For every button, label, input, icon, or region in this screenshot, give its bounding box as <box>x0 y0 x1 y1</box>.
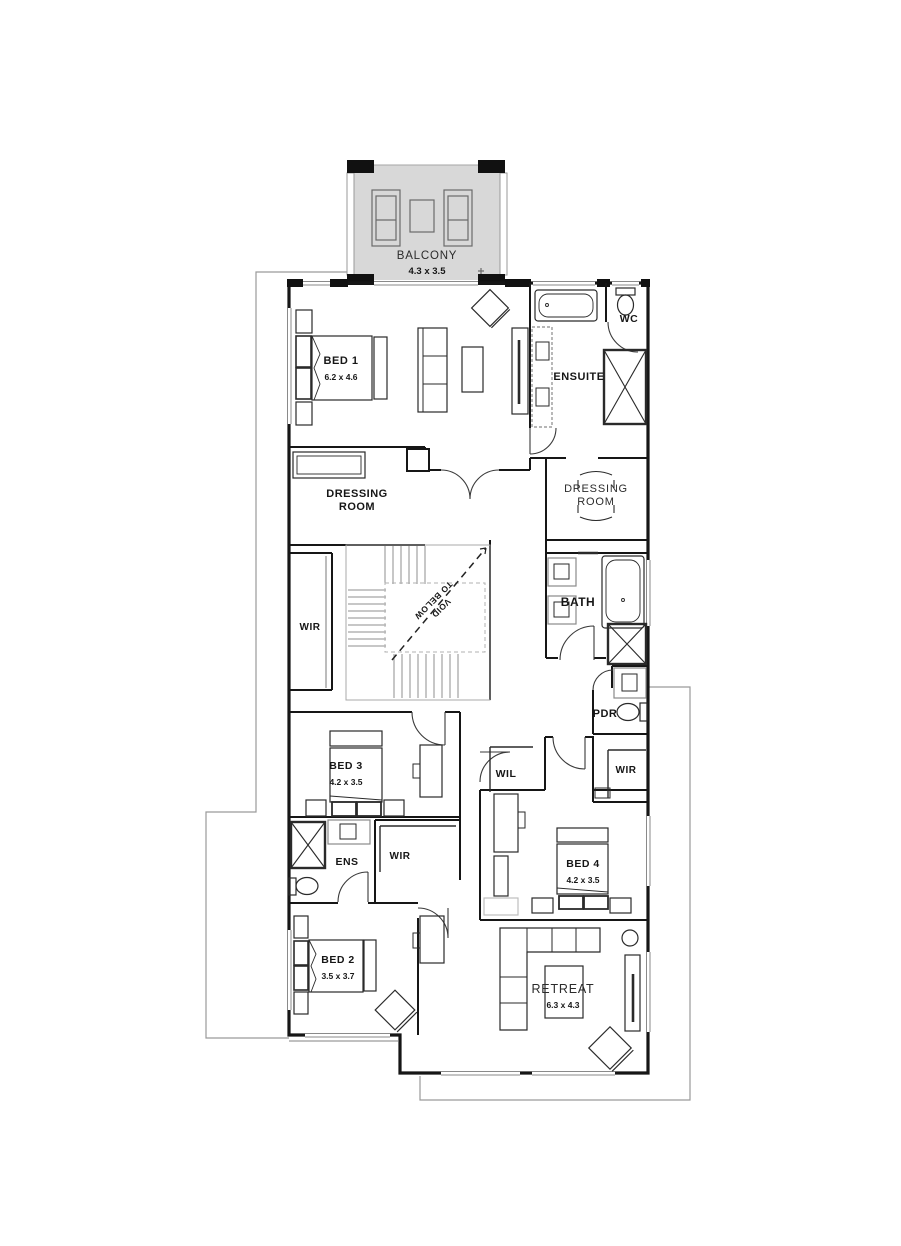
pillow <box>559 896 583 909</box>
occasional-chair <box>375 990 417 1032</box>
room-labels: BED 1 6.2 x 4.6 ENSUITE WC DRESSING ROOM… <box>300 313 639 1010</box>
toilet <box>617 703 647 721</box>
sink-unit <box>548 558 576 586</box>
shower <box>604 350 646 424</box>
stairs: VOID TO BELOW <box>346 545 490 700</box>
sink <box>536 388 549 406</box>
wardrobe <box>420 916 444 963</box>
dressing-left-wardrobe <box>293 452 365 478</box>
wil-label: WIL <box>496 768 517 780</box>
bed2-dims: 3.5 x 3.7 <box>321 971 354 981</box>
shower <box>291 822 325 868</box>
headboard-shelf <box>330 731 382 746</box>
dressing-right-line1: DRESSING <box>564 483 628 495</box>
wardrobe-knob <box>518 812 525 828</box>
bed3-dims: 4.2 x 3.5 <box>329 777 362 787</box>
shower <box>608 624 646 664</box>
bed4-furniture <box>484 794 631 915</box>
wc-label: WC <box>620 313 639 325</box>
double-door-master <box>441 470 499 499</box>
bed-fold <box>330 796 382 800</box>
pillow <box>294 941 308 965</box>
bed-fold <box>309 940 316 992</box>
dressing-left-line2: ROOM <box>339 501 375 513</box>
pillow <box>296 368 311 399</box>
pillow <box>296 336 311 367</box>
bed1-label: BED 1 <box>324 355 359 367</box>
wir-right-label: WIR <box>616 765 637 776</box>
sofa-cushions <box>423 328 447 412</box>
round-table <box>622 930 638 946</box>
bed3-bed <box>330 748 382 802</box>
coffee-table <box>462 347 483 392</box>
pdr-label: PDR <box>593 708 618 720</box>
wir-left-label: WIR <box>300 622 321 633</box>
window-bed2-bottom <box>305 1032 390 1038</box>
nightstand <box>610 898 631 913</box>
window-ensuite-top <box>533 280 595 286</box>
bed2-label: BED 2 <box>321 954 354 966</box>
door-ens <box>338 872 368 902</box>
pillow <box>584 896 608 909</box>
cabinet <box>494 856 508 896</box>
floor-plan-drawing: BALCONY 4.3 x 3.5 <box>0 0 901 1246</box>
door-pdr <box>593 670 613 690</box>
sink <box>554 564 569 579</box>
door-wc <box>608 322 638 352</box>
window-retreat-bottom-2 <box>532 1070 615 1076</box>
bath-label: BATH <box>561 595 595 609</box>
pdr-fixtures <box>614 668 647 721</box>
l-sofa <box>500 928 600 1030</box>
doors <box>338 322 638 938</box>
window-bath <box>645 560 651 626</box>
toilet <box>616 288 635 315</box>
bed-fold <box>312 336 320 400</box>
void-label: VOID TO BELOW <box>412 579 462 629</box>
bed4-dims: 4.2 x 3.5 <box>566 875 599 885</box>
wardrobe-knob <box>413 764 420 778</box>
dressing-left-line1: DRESSING <box>326 488 387 500</box>
ens-label: ENS <box>335 856 358 868</box>
pillow <box>294 966 308 990</box>
pillow <box>357 802 381 816</box>
occasional-chair <box>589 1027 634 1072</box>
bed2-bed <box>309 940 363 992</box>
retreat-label: RETREAT <box>531 982 594 996</box>
nightstand <box>296 310 312 333</box>
nightstand <box>296 402 312 425</box>
bed1-bed <box>312 336 372 400</box>
bed1-dims: 6.2 x 4.6 <box>324 372 357 382</box>
nightstand <box>294 916 308 938</box>
floor-plan: BALCONY 4.3 x 3.5 <box>0 0 901 1246</box>
bed4-label: BED 4 <box>566 858 599 870</box>
headboard-shelf <box>557 828 608 842</box>
door-bed4 <box>553 737 585 769</box>
bed3-furniture <box>306 731 442 816</box>
balcony-rail-left <box>347 173 354 275</box>
door-bath <box>560 626 594 660</box>
sofa <box>418 328 447 412</box>
dressing-right-line2: ROOM <box>577 496 614 508</box>
door-bed3 <box>412 712 445 745</box>
roof-outline <box>206 272 690 1100</box>
sink <box>622 674 637 691</box>
occasional-chair <box>472 290 510 328</box>
bed-fold <box>557 888 608 892</box>
vanity <box>614 668 646 698</box>
wardrobe <box>420 745 442 797</box>
pillow <box>332 802 356 816</box>
bathtub <box>602 556 644 628</box>
nightstand <box>532 898 553 913</box>
nightstand <box>294 992 308 1014</box>
wardrobe <box>494 794 518 852</box>
window-wc <box>612 280 639 286</box>
window-bed4 <box>645 816 651 886</box>
wir-mid-shelving <box>380 826 456 872</box>
ensuite-label: ENSUITE <box>553 371 604 383</box>
bed3-label: BED 3 <box>329 760 362 772</box>
window-top-left <box>303 280 330 286</box>
door-master-ensuite <box>530 428 556 454</box>
balcony-rail-right <box>500 173 507 275</box>
window-bed1 <box>286 308 292 424</box>
balcony-dims: 4.3 x 3.5 <box>409 266 447 277</box>
bathtub-inner <box>606 560 640 622</box>
nightstand <box>384 800 404 816</box>
ensuite-fixtures <box>532 288 646 427</box>
bath-drain <box>546 304 549 307</box>
balcony-label: BALCONY <box>397 250 458 262</box>
wir-mid-label: WIR <box>390 851 411 862</box>
bathtub-inner <box>539 294 593 317</box>
bath-drain <box>622 599 625 602</box>
window-retreat-bottom-1 <box>441 1070 520 1076</box>
nightstand <box>306 800 326 816</box>
window-retreat-side <box>645 952 651 1032</box>
balcony: BALCONY 4.3 x 3.5 <box>347 160 507 285</box>
window-bed2 <box>286 930 292 1010</box>
sink <box>536 342 549 360</box>
retreat-dims: 6.3 x 4.3 <box>546 1000 579 1010</box>
toilet <box>289 878 318 896</box>
foot-bench <box>374 337 387 399</box>
foot-bench <box>364 940 376 991</box>
bed2-furniture <box>294 916 444 1032</box>
balcony-door <box>374 280 478 286</box>
sink <box>340 824 356 839</box>
rug <box>484 898 518 915</box>
stair-treads <box>348 546 458 698</box>
